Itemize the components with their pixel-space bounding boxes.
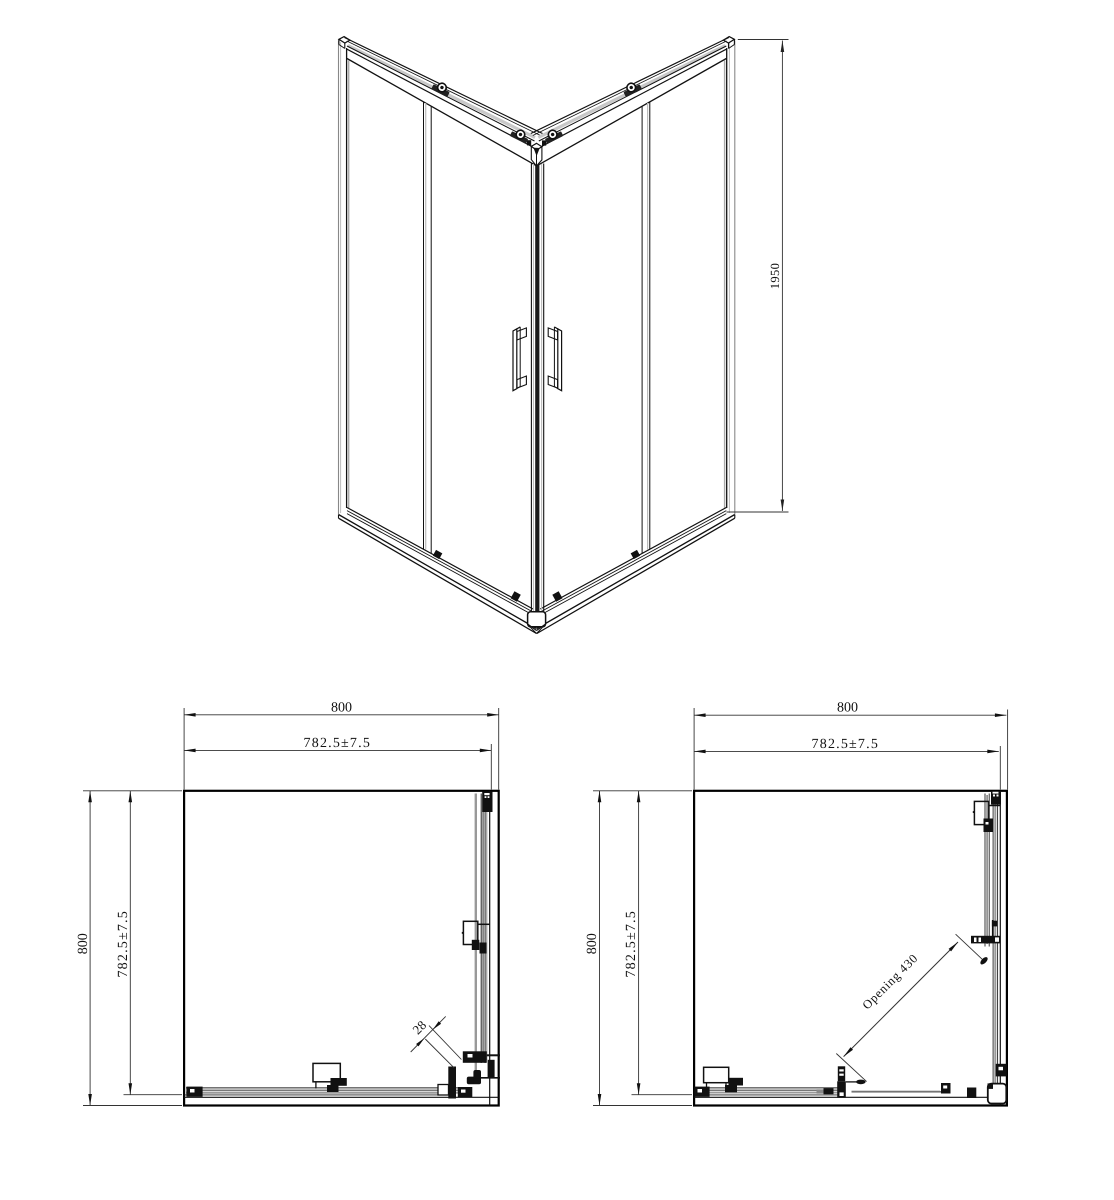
svg-text:800: 800 [76,933,91,954]
svg-text:782.5±7.5: 782.5±7.5 [624,910,639,977]
svg-text:782.5±7.5: 782.5±7.5 [304,736,371,751]
svg-text:782.5±7.5: 782.5±7.5 [116,910,131,977]
svg-text:782.5±7.5: 782.5±7.5 [812,737,879,752]
svg-text:800: 800 [837,701,858,716]
svg-text:800: 800 [331,700,352,715]
svg-text:1950: 1950 [768,263,782,290]
svg-text:800: 800 [585,933,600,954]
